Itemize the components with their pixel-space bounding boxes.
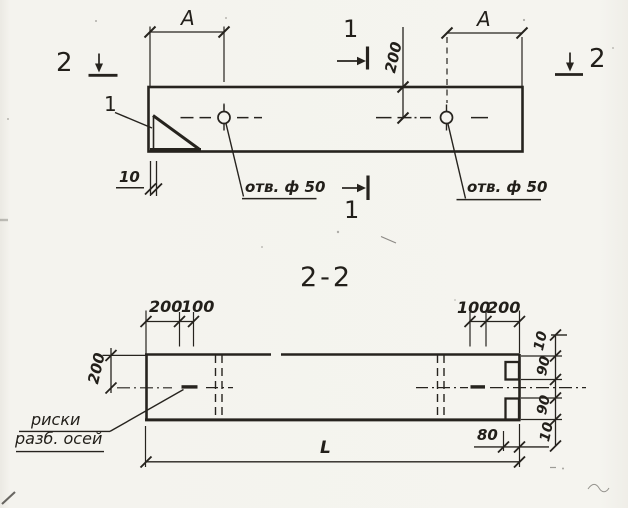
plan-dim-a-left [145, 27, 230, 111]
section-cut-1-top-marker [337, 47, 368, 70]
section-cut-2-right-marker [555, 53, 583, 75]
section-hidden-lines [216, 355, 445, 419]
plan-dim-10-label: 10 [119, 170, 140, 185]
drawing-sheet: 2 2 1 1 A A 200 10 1 отв. ф 50 отв. ф 50… [0, 0, 628, 508]
plan-dim-a-right-label: A [477, 9, 491, 29]
section-axis-note-line1: риски [31, 412, 80, 428]
section-dim-chain-top-left [141, 311, 200, 354]
section-dim-80-label: 80 [477, 428, 498, 443]
plan-detail-1-label: 1 [104, 94, 117, 114]
section-dim-200-top-left-label: 200 [149, 299, 182, 315]
section-notches [506, 362, 520, 420]
section-dim-200-left [103, 348, 148, 394]
section-dim-length [141, 424, 526, 468]
section-dim-100-top-right-label: 100 [457, 300, 490, 316]
section-cut-1-top-label: 1 [343, 17, 358, 41]
plan-dim-a-left-label: A [181, 8, 195, 28]
section-title: 2-2 [300, 264, 353, 291]
plan-hole-left [181, 105, 263, 131]
plan-hole-right [376, 105, 488, 131]
section-dim-length-label: L [320, 440, 331, 457]
section-dim-200-top-right-label: 200 [487, 300, 520, 316]
section-cut-2-right-label: 2 [589, 46, 606, 72]
plan-hole-right-label: отв. ф 50 [467, 180, 547, 195]
section-dim-100-top-left-label: 100 [181, 299, 214, 315]
plan-hole-left-label: отв. ф 50 [245, 180, 325, 195]
section-cut-2-left-label: 2 [56, 50, 73, 76]
section-axis-line [117, 387, 586, 388]
plan-beam-outline [149, 87, 523, 152]
section-cut-1-bottom-label: 1 [344, 198, 359, 222]
plan-dim-a-right [442, 28, 528, 104]
section-cut-2-left-marker [89, 54, 118, 76]
plan-view [89, 27, 584, 201]
section-axis-note-line2: разб. осей [15, 431, 102, 447]
